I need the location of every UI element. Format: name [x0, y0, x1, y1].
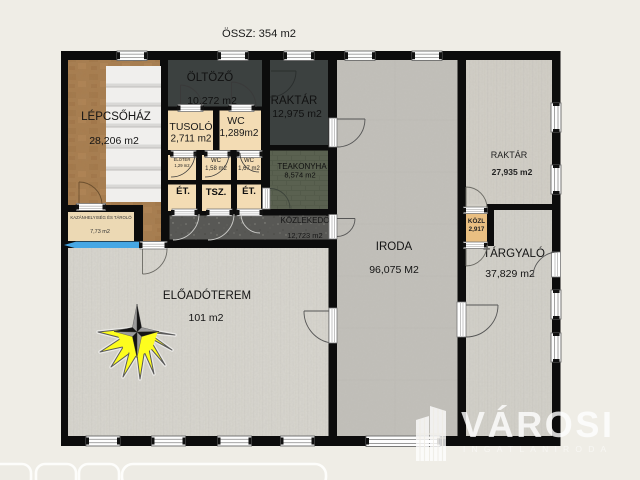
- svg-text:ÖSSZ: 354 m2: ÖSSZ: 354 m2: [222, 28, 296, 40]
- svg-text:12,975 m2: 12,975 m2: [272, 108, 322, 120]
- svg-text:INGATLANIRODA: INGATLANIRODA: [463, 444, 612, 454]
- svg-text:RAKTÁR: RAKTÁR: [491, 150, 528, 160]
- svg-text:96,075 M2: 96,075 M2: [369, 264, 419, 276]
- svg-text:KAZÁNHELYISÉG ÉS TÁROLÓ: KAZÁNHELYISÉG ÉS TÁROLÓ: [70, 215, 132, 220]
- svg-text:28,206 m2: 28,206 m2: [89, 135, 139, 147]
- svg-text:TUSOLÓ: TUSOLÓ: [169, 120, 212, 133]
- svg-text:IRODA: IRODA: [376, 241, 413, 253]
- svg-text:ÉT.: ÉT.: [242, 186, 256, 197]
- svg-text:1,29 m2: 1,29 m2: [174, 163, 190, 168]
- svg-text:VÁROSI: VÁROSI: [461, 404, 615, 445]
- svg-text:12,723 m2: 12,723 m2: [287, 231, 322, 240]
- svg-text:1,289m2: 1,289m2: [220, 128, 259, 139]
- svg-text:TSZ.: TSZ.: [206, 187, 227, 198]
- svg-text:KÖZL: KÖZL: [468, 216, 485, 225]
- svg-text:LÉPCSŐHÁZ: LÉPCSŐHÁZ: [81, 109, 151, 123]
- svg-text:ELŐADÓTEREM: ELŐADÓTEREM: [163, 288, 251, 302]
- svg-text:KÖZLEKEDŐ: KÖZLEKEDŐ: [281, 216, 330, 225]
- svg-text:ÉT.: ÉT.: [176, 186, 190, 197]
- svg-text:2,711 m2: 2,711 m2: [171, 134, 212, 145]
- svg-text:101 m2: 101 m2: [188, 312, 223, 324]
- svg-text:TÁRGYALÓ: TÁRGYALÓ: [483, 247, 545, 260]
- svg-text:27,935 m2: 27,935 m2: [492, 167, 533, 177]
- svg-text:2,917: 2,917: [469, 226, 485, 233]
- svg-text:ÖLTÖZŐ: ÖLTÖZŐ: [187, 70, 233, 84]
- svg-text:WC: WC: [244, 158, 255, 164]
- svg-text:WC: WC: [211, 158, 222, 164]
- svg-text:7,73 m2: 7,73 m2: [90, 229, 110, 235]
- svg-text:37,829 m2: 37,829 m2: [485, 268, 535, 280]
- svg-text:WC: WC: [227, 115, 245, 127]
- svg-text:8,574 m2: 8,574 m2: [284, 171, 315, 180]
